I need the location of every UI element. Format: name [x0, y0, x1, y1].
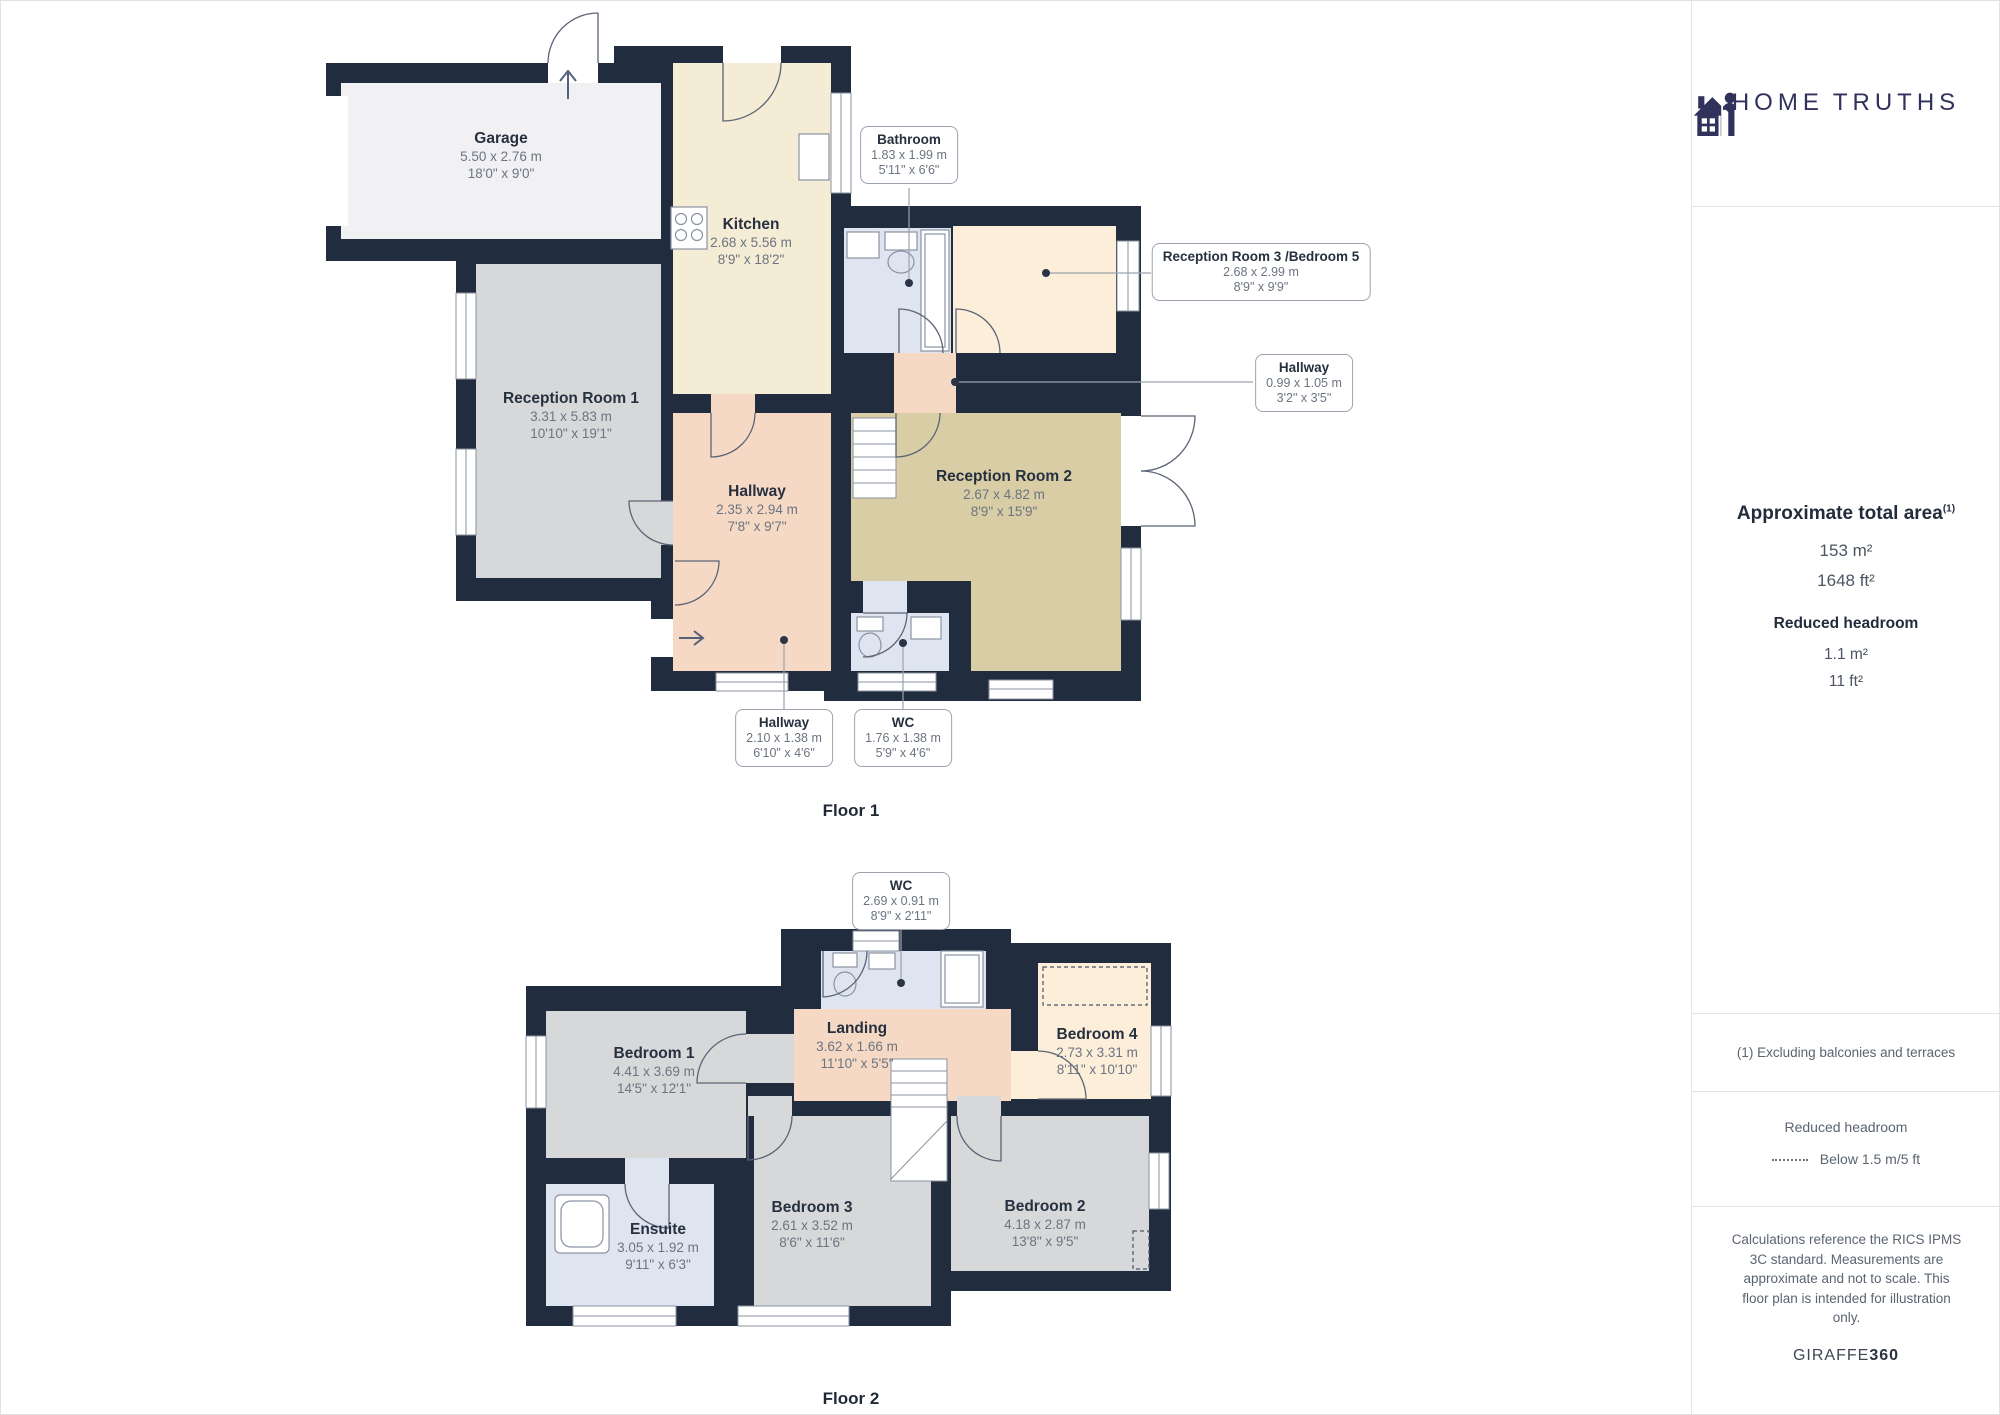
- dotted-line-icon: [1772, 1159, 1808, 1161]
- garage-label: Garage 5.50 x 2.76 m 18'0" x 9'0": [460, 129, 542, 182]
- wc2-shower-icon: [941, 951, 983, 1007]
- room-name: Garage: [460, 129, 542, 148]
- room-name: Bathroom: [871, 132, 947, 148]
- ensuite-label: Ensuite 3.05 x 1.92 m 9'11" x 6'3": [617, 1220, 699, 1273]
- giraffe360-brand: GIRAFFE: [1793, 1347, 1869, 1364]
- area-summary: Approximate total area(1) 153 m² 1648 ft…: [1692, 503, 2000, 700]
- small-hallway-room: [894, 353, 956, 413]
- bedroom1-label: Bedroom 1 4.41 x 3.69 m 14'5" x 12'1": [613, 1044, 695, 1097]
- hallway-small-label-box: Hallway 0.99 x 1.05 m 3'2" x 3'5": [1255, 354, 1353, 412]
- room-dim-imperial: 8'9" x 15'9": [936, 503, 1072, 520]
- room-name: Bedroom 2: [1004, 1197, 1086, 1216]
- room-name: Hallway: [746, 715, 822, 731]
- wc-label-box: WC 1.76 x 1.38 m 5'9" x 4'6": [854, 709, 952, 767]
- room-dim-imperial: 3'2" x 3'5": [1266, 391, 1342, 406]
- info-sidebar: HOME TRUTHS Approximate total area(1) 15…: [1691, 1, 2000, 1415]
- reception2-label: Reception Room 2 2.67 x 4.82 m 8'9" x 15…: [936, 467, 1072, 520]
- room-name: WC: [863, 878, 939, 894]
- room-name: Bedroom 3: [771, 1198, 853, 1217]
- headroom-legend-title: Reduced headroom: [1692, 1119, 2000, 1135]
- room-name: Bedroom 4: [1056, 1025, 1138, 1044]
- room-dim-metric: 2.68 x 5.56 m: [710, 234, 792, 251]
- sink-icon: [847, 232, 879, 258]
- room-dim-metric: 2.67 x 4.82 m: [936, 486, 1072, 503]
- floor2-leader-dots: [897, 979, 905, 987]
- toilet-icon: [885, 232, 917, 250]
- headroom-legend-label: Below 1.5 m/5 ft: [1820, 1151, 1920, 1167]
- floorplan-page: Garage 5.50 x 2.76 m 18'0" x 9'0" Kitche…: [0, 0, 2000, 1415]
- room-name: Kitchen: [710, 215, 792, 234]
- room-dim-imperial: 9'11" x 6'3": [617, 1256, 699, 1273]
- landing-label: Landing 3.62 x 1.66 m 11'10" x 5'5": [816, 1019, 898, 1072]
- room-dim-metric: 2.73 x 3.31 m: [1056, 1044, 1138, 1061]
- floor2-caption: Floor 2: [823, 1389, 880, 1409]
- room-name: Reception Room 1: [503, 389, 639, 408]
- wc-basin-icon: [911, 617, 941, 639]
- room-name: Bedroom 1: [613, 1044, 695, 1063]
- room-name: WC: [865, 715, 941, 731]
- kitchen-label: Kitchen 2.68 x 5.56 m 8'9" x 18'2": [710, 215, 792, 268]
- wc-toilet-icon: [857, 617, 883, 631]
- room-dim-imperial: 10'10" x 19'1": [503, 425, 639, 442]
- room-name: Landing: [816, 1019, 898, 1038]
- wc2-label-box: WC 2.69 x 0.91 m 8'9" x 2'11": [852, 872, 950, 930]
- room-dim-imperial: 5'11" x 6'6": [871, 163, 947, 178]
- room-name: Hallway: [716, 482, 798, 501]
- room-dim-metric: 2.10 x 1.38 m: [746, 731, 822, 746]
- room-dim-imperial: 18'0" x 9'0": [460, 165, 542, 182]
- room-dim-metric: 2.69 x 0.91 m: [863, 894, 939, 909]
- wc2-toilet-icon: [833, 953, 857, 967]
- sidebar-divider: [1692, 206, 2000, 207]
- room-dim-imperial: 8'9" x 9'9": [1163, 280, 1360, 295]
- disclaimer-line: approximate and not to scale. This: [1716, 1269, 1977, 1289]
- room-dim-metric: 2.61 x 3.52 m: [771, 1217, 853, 1234]
- headroom-legend-row: Below 1.5 m/5 ft: [1692, 1151, 2000, 1167]
- room-dim-metric: 1.83 x 1.99 m: [871, 148, 947, 163]
- sidebar-divider: [1692, 1206, 2000, 1207]
- room-dim-metric: 1.76 x 1.38 m: [865, 731, 941, 746]
- home-truths-house-icon: [1692, 89, 1738, 137]
- total-area-ft2: 1648 ft²: [1692, 571, 2000, 591]
- room-dim-imperial: 8'9" x 18'2": [710, 251, 792, 268]
- giraffe360-logo: GIRAFFE360: [1692, 1347, 2000, 1365]
- headroom-title: Reduced headroom: [1692, 615, 2000, 633]
- hallway-lower-label-box: Hallway 2.10 x 1.38 m 6'10" x 4'6": [735, 709, 833, 767]
- disclaimer-text: Calculations reference the RICS IPMS 3C …: [1716, 1230, 1977, 1328]
- reception3-room: [953, 226, 1116, 353]
- room-dim-imperial: 7'8" x 9'7": [716, 518, 798, 535]
- room-dim-metric: 4.18 x 2.87 m: [1004, 1216, 1086, 1233]
- total-area-m2: 153 m²: [1692, 541, 2000, 561]
- floor2-stairs: [891, 1059, 947, 1181]
- area-title-text: Approximate total area: [1737, 503, 1943, 524]
- logo-word-home: HOME: [1732, 89, 1824, 117]
- room-dim-metric: 2.68 x 2.99 m: [1163, 265, 1360, 280]
- room-dim-metric: 3.05 x 1.92 m: [617, 1239, 699, 1256]
- bedroom2-label: Bedroom 2 4.18 x 2.87 m 13'8" x 9'5": [1004, 1197, 1086, 1250]
- room-dim-imperial: 14'5" x 12'1": [613, 1080, 695, 1097]
- room-dim-imperial: 8'6" x 11'6": [771, 1234, 853, 1251]
- hallway-label: Hallway 2.35 x 2.94 m 7'8" x 9'7": [716, 482, 798, 535]
- reception3-label-box: Reception Room 3 /Bedroom 5 2.68 x 2.99 …: [1152, 243, 1371, 301]
- sidebar-divider: [1692, 1013, 2000, 1014]
- disclaimer-line: floor plan is intended for illustration: [1716, 1289, 1977, 1309]
- disclaimer-line: only.: [1716, 1308, 1977, 1328]
- room-dim-imperial: 11'10" x 5'5": [816, 1055, 898, 1072]
- headroom-m2: 1.1 m²: [1692, 646, 2000, 664]
- room-dim-metric: 3.31 x 5.83 m: [503, 408, 639, 425]
- floor1-stairs: [853, 418, 896, 498]
- room-name: Ensuite: [617, 1220, 699, 1239]
- room-dim-imperial: 6'10" x 4'6": [746, 746, 822, 761]
- disclaimer-line: 3C standard. Measurements are: [1716, 1250, 1977, 1270]
- sidebar-divider: [1692, 1091, 2000, 1092]
- room-dim-imperial: 8'11" x 10'10": [1056, 1061, 1138, 1078]
- reception1-label: Reception Room 1 3.31 x 5.83 m 10'10" x …: [503, 389, 639, 442]
- disclaimer-line: Calculations reference the RICS IPMS: [1716, 1230, 1977, 1250]
- bedroom3-label: Bedroom 3 2.61 x 3.52 m 8'6" x 11'6": [771, 1198, 853, 1251]
- headroom-ft2: 11 ft²: [1692, 673, 2000, 691]
- room-dim-metric: 0.99 x 1.05 m: [1266, 376, 1342, 391]
- cabinet-icon: [799, 134, 829, 180]
- room-name: Reception Room 3 /Bedroom 5: [1163, 249, 1360, 265]
- floor1-caption: Floor 1: [823, 801, 880, 821]
- logo-word-truths: TRUTHS: [1833, 89, 1960, 117]
- bathroom-label-box: Bathroom 1.83 x 1.99 m 5'11" x 6'6": [860, 126, 958, 184]
- room-name: Reception Room 2: [936, 467, 1072, 486]
- area-title-superscript: (1): [1943, 504, 1955, 515]
- bedroom4-label: Bedroom 4 2.73 x 3.31 m 8'11" x 10'10": [1056, 1025, 1138, 1078]
- room-dim-imperial: 13'8" x 9'5": [1004, 1233, 1086, 1250]
- area-footnote: (1) Excluding balconies and terraces: [1692, 1045, 2000, 1060]
- room-dim-metric: 3.62 x 1.66 m: [816, 1038, 898, 1055]
- room-dim-metric: 2.35 x 2.94 m: [716, 501, 798, 518]
- brand-logo: HOME TRUTHS: [1692, 89, 2000, 117]
- hob-icon: [671, 207, 707, 249]
- giraffe360-suffix: 360: [1869, 1347, 1899, 1364]
- bathtub-icon: [555, 1195, 609, 1253]
- room-dim-imperial: 8'9" x 2'11": [863, 909, 939, 924]
- room-dim-metric: 5.50 x 2.76 m: [460, 148, 542, 165]
- room-dim-imperial: 5'9" x 4'6": [865, 746, 941, 761]
- room-dim-metric: 4.41 x 3.69 m: [613, 1063, 695, 1080]
- room-name: Hallway: [1266, 360, 1342, 376]
- wc2-basin-icon: [869, 953, 895, 969]
- area-title: Approximate total area(1): [1692, 503, 2000, 525]
